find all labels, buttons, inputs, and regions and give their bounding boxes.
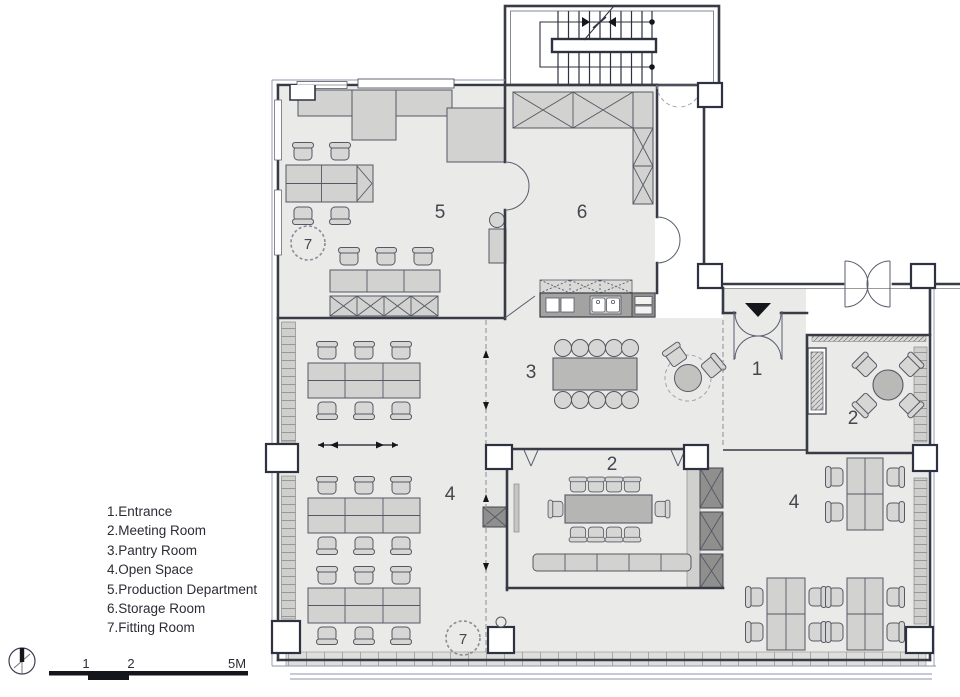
round-table (873, 370, 903, 400)
legend-item-fitting-room: 7.Fitting Room (107, 618, 257, 637)
pantry-table (553, 358, 637, 390)
floor-plan-page: 5 6 3 1 2 2 4 4 7 7 1 2 5M 1.Entrance 2.… (0, 0, 960, 697)
legend: 1.Entrance 2.Meeting Room 3.Pantry Room … (107, 502, 257, 638)
north-symbol (9, 648, 35, 674)
bookshelf (811, 352, 823, 410)
legend-item-production-department: 5.Production Department (107, 580, 257, 599)
room-label-2-topright: 2 (848, 408, 859, 429)
room-label-5: 5 (435, 202, 446, 223)
room-label-4-left: 4 (445, 484, 456, 505)
scale-tick-2: 2 (127, 656, 134, 671)
legend-item-storage-room: 6.Storage Room (107, 599, 257, 618)
room-label-6: 6 (577, 202, 588, 223)
legend-item-entrance: 1.Entrance (107, 502, 257, 521)
storage-double-door (657, 217, 680, 263)
bench (533, 554, 691, 571)
legend-item-open-space: 4.Open Space (107, 560, 257, 579)
legend-item-pantry-room: 3.Pantry Room (107, 541, 257, 560)
scale-bar: 1 2 5M (49, 656, 248, 680)
conference-table (565, 495, 652, 523)
room-label-4-right: 4 (789, 492, 800, 513)
worktable (447, 108, 505, 162)
pantry-table-group (553, 340, 639, 409)
room-label-2-center: 2 (607, 454, 618, 475)
scale-tick-1: 1 (82, 656, 89, 671)
fitting-marker-label-1: 7 (304, 236, 312, 253)
legend-item-meeting-room: 2.Meeting Room (107, 521, 257, 540)
whiteboard (514, 484, 519, 532)
open-space-left-furniture (308, 342, 420, 645)
fitting-marker-label-2: 7 (459, 631, 467, 648)
stair-landing (552, 39, 656, 52)
room-label-3: 3 (526, 362, 537, 383)
scale-tick-5m: 5M (228, 656, 246, 671)
room-label-1: 1 (752, 359, 763, 380)
